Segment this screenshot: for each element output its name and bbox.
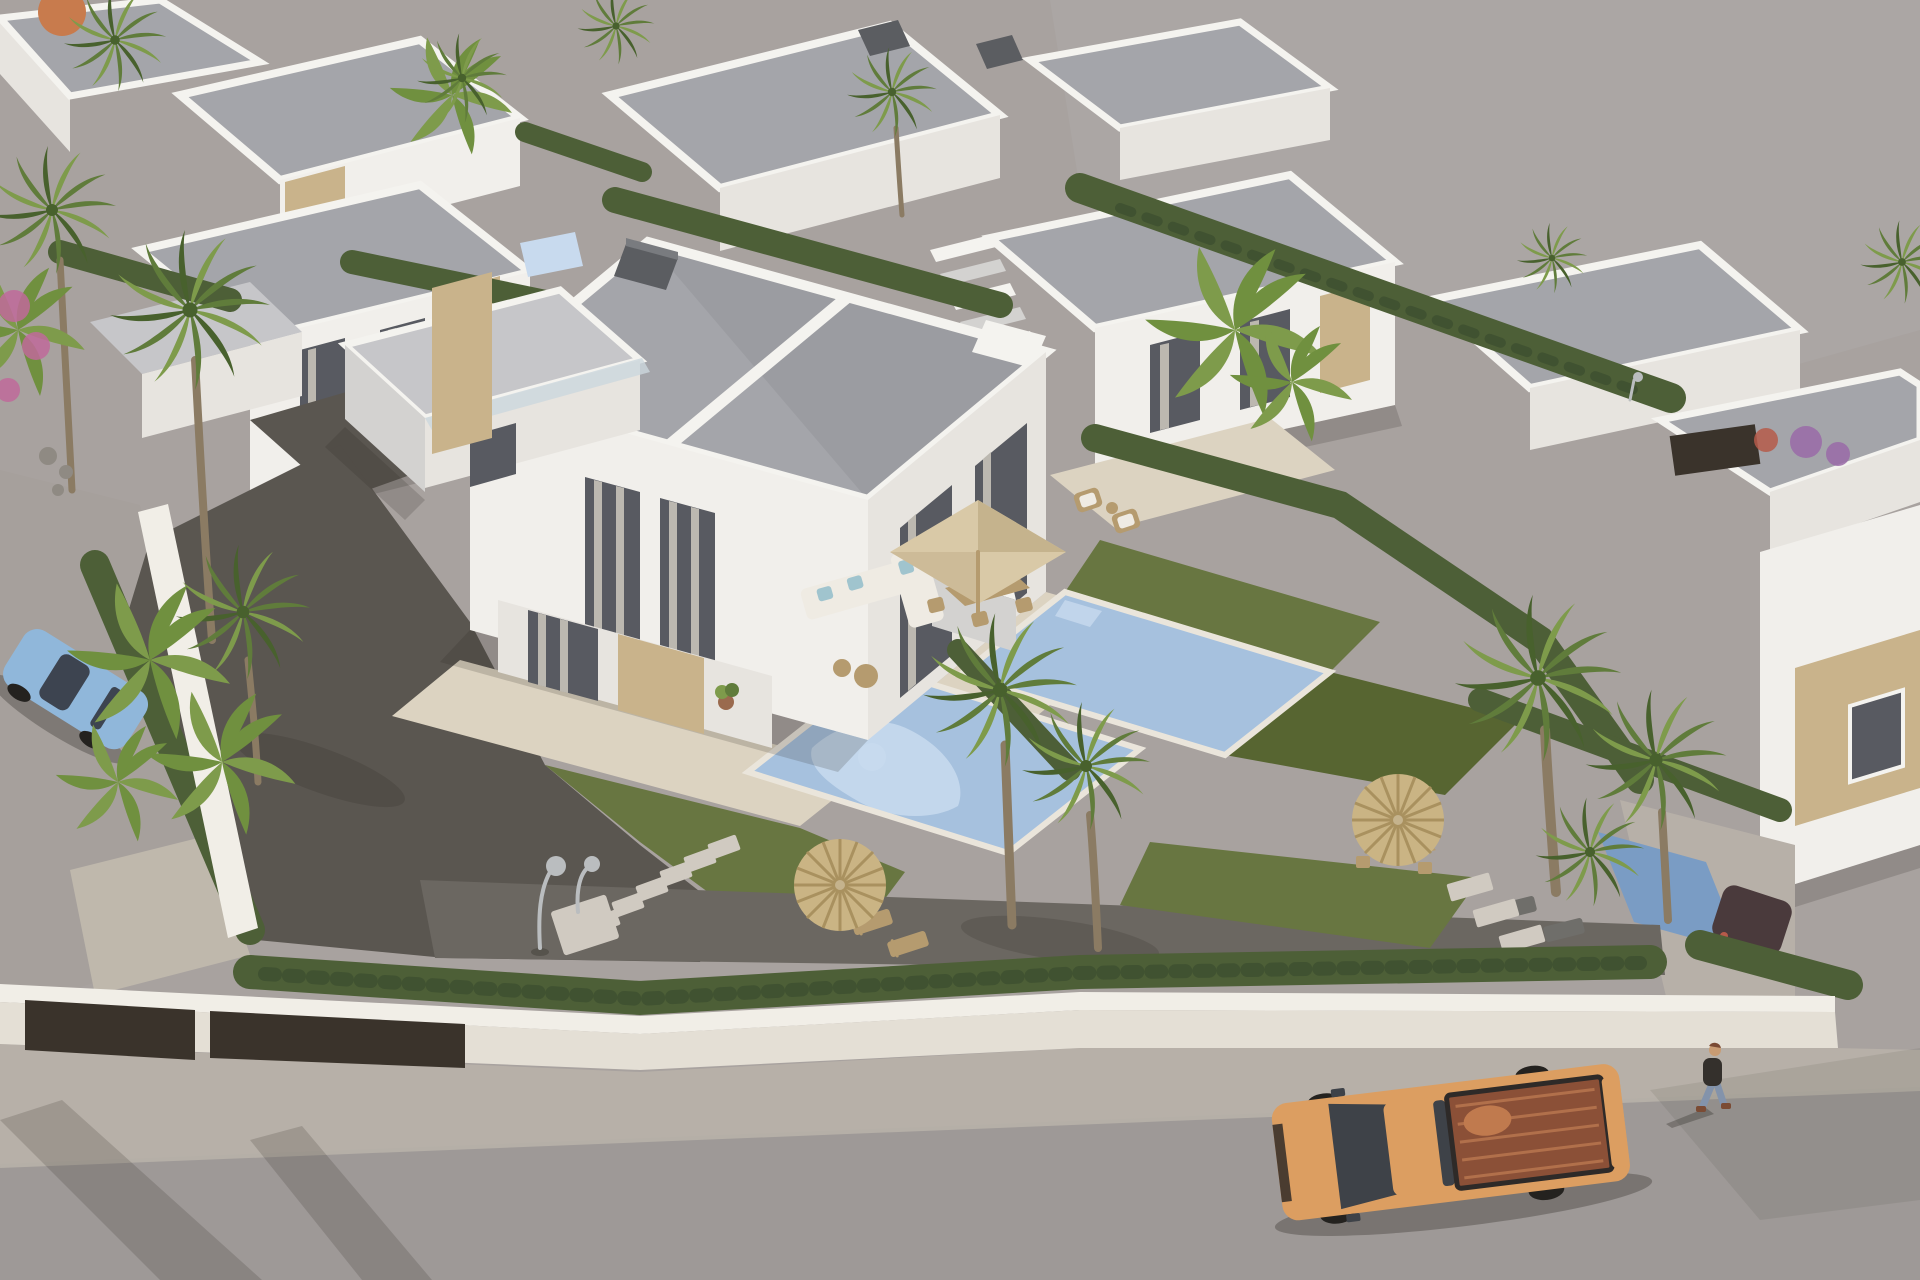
coffee-table: [833, 659, 851, 677]
coffee-table: [854, 664, 878, 688]
cargo-bed: [1446, 1076, 1612, 1188]
side-table: [1106, 502, 1118, 514]
side-mirror: [1346, 1213, 1361, 1223]
side-mirror: [1331, 1088, 1346, 1098]
render-viewport: Aerial 3D architectural rendering of a d…: [0, 0, 1920, 1280]
stone-pillar: [432, 272, 492, 454]
entrance-gate: [25, 1000, 195, 1060]
window: [1850, 690, 1903, 782]
villa-development-render: Aerial 3D architectural rendering of a d…: [0, 0, 1920, 1280]
straw-umbrella-main: [794, 839, 886, 931]
person-torso: [1703, 1058, 1722, 1086]
